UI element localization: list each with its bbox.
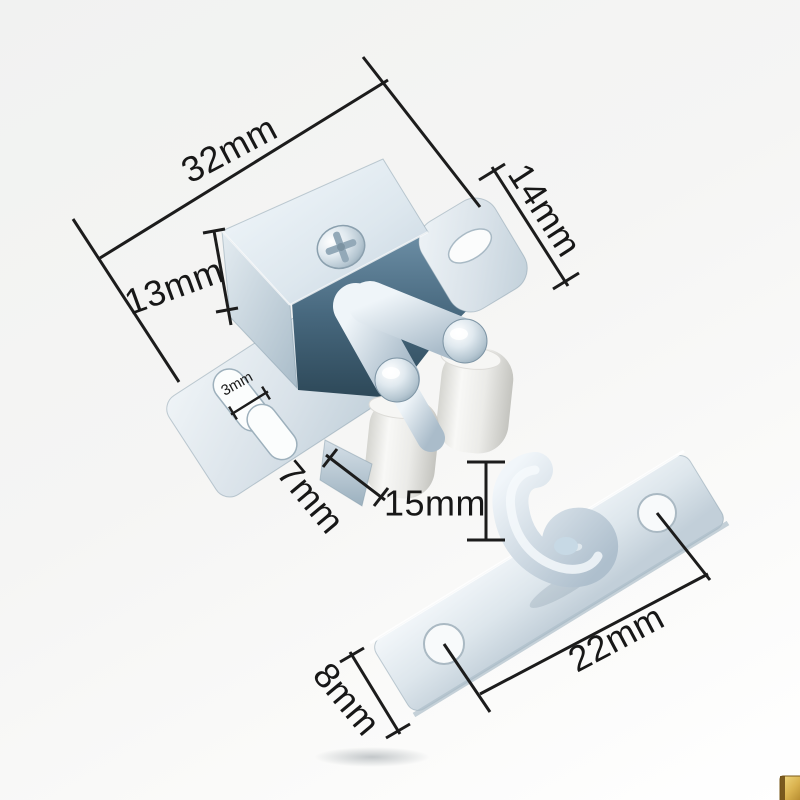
- roller-catch-unit: [161, 159, 536, 506]
- dome-rivet-right: [443, 319, 487, 363]
- rivet-highlight: [382, 367, 400, 379]
- product-photo-svg: 32mm 13mm 3mm 7mm 14mm: [0, 0, 800, 800]
- plate-drop-shadow: [314, 747, 430, 767]
- catch-hook-loop: [510, 470, 600, 569]
- watermark-chip-edge: [780, 776, 785, 800]
- rivet-highlight: [450, 328, 468, 340]
- rivet-dome: [443, 319, 487, 363]
- dimension-label-15mm: 15mm: [384, 483, 486, 524]
- tick-bottom: [386, 724, 410, 738]
- hook-curl-opening: [554, 537, 578, 555]
- dome-rivet-left: [375, 358, 419, 402]
- rivet-dome: [375, 358, 419, 402]
- corner-watermark: [780, 776, 800, 800]
- prong-tip: [408, 398, 431, 438]
- tick-bottom: [553, 273, 579, 289]
- product-photo-stage: 32mm 13mm 3mm 7mm 14mm: [0, 0, 800, 800]
- dimension-label-8mm: 8mm: [305, 655, 389, 744]
- dimension-body-height: 13mm: [119, 229, 238, 325]
- dimension-label-13mm: 13mm: [119, 249, 229, 322]
- tick-top: [340, 648, 364, 662]
